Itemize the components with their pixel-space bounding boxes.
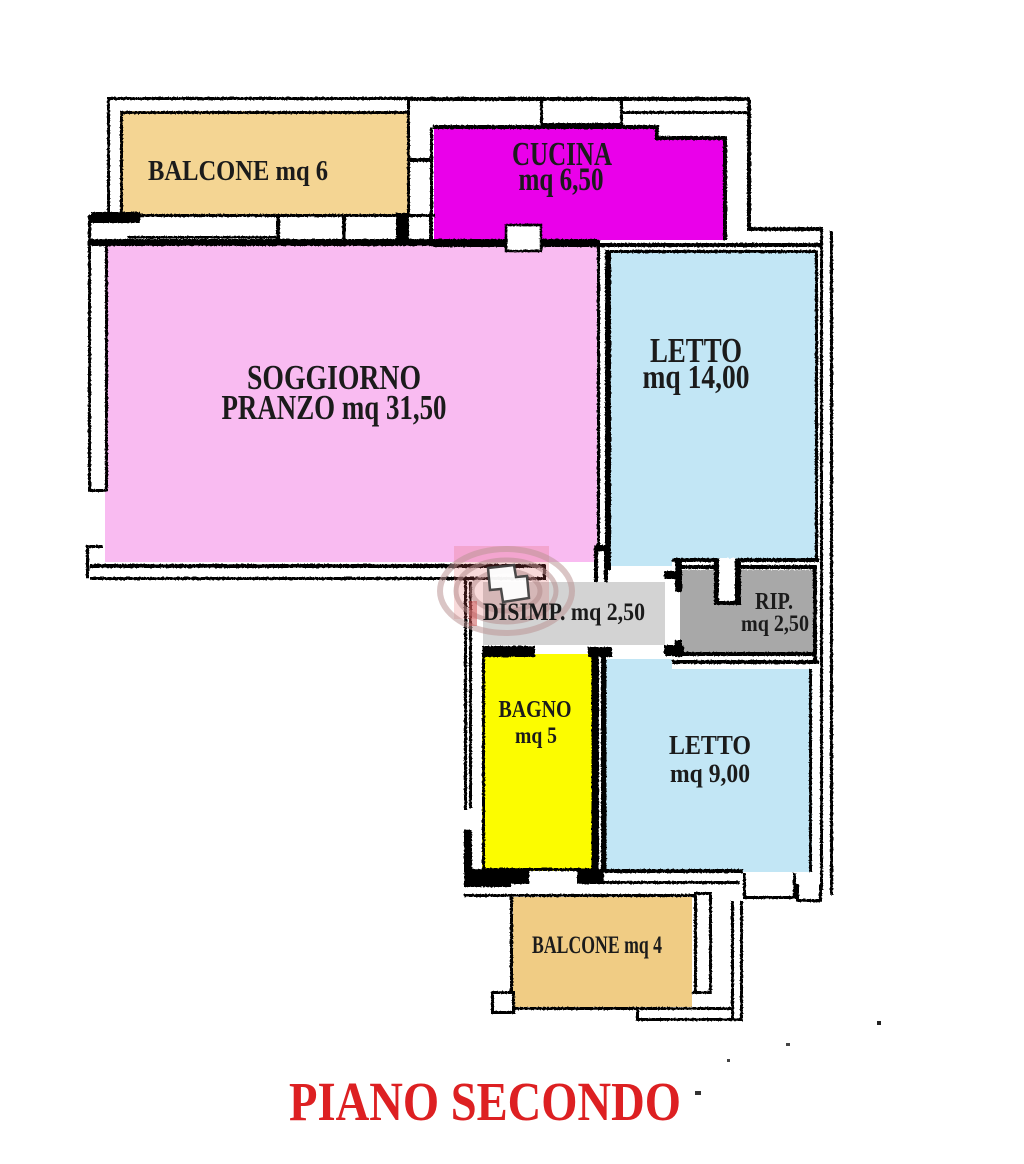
svg-text:PIANO SECONDO: PIANO SECONDO — [289, 1071, 681, 1132]
svg-text:mq 6,50: mq 6,50 — [519, 162, 604, 198]
svg-text:BALCONE mq 4: BALCONE mq 4 — [532, 932, 662, 959]
svg-text:mq 9,00: mq 9,00 — [670, 759, 750, 788]
svg-text:DISIMP. mq 2,50: DISIMP. mq 2,50 — [483, 599, 645, 626]
svg-text:LETTO: LETTO — [669, 730, 751, 760]
svg-text:PRANZO mq 31,50: PRANZO mq 31,50 — [222, 388, 447, 427]
svg-text:mq 14,00: mq 14,00 — [643, 359, 750, 396]
svg-text:mq 2,50: mq 2,50 — [741, 611, 809, 636]
svg-text:mq 5: mq 5 — [515, 723, 557, 748]
svg-text:BALCONE mq 6: BALCONE mq 6 — [148, 156, 328, 187]
svg-text:BAGNO: BAGNO — [499, 697, 572, 723]
